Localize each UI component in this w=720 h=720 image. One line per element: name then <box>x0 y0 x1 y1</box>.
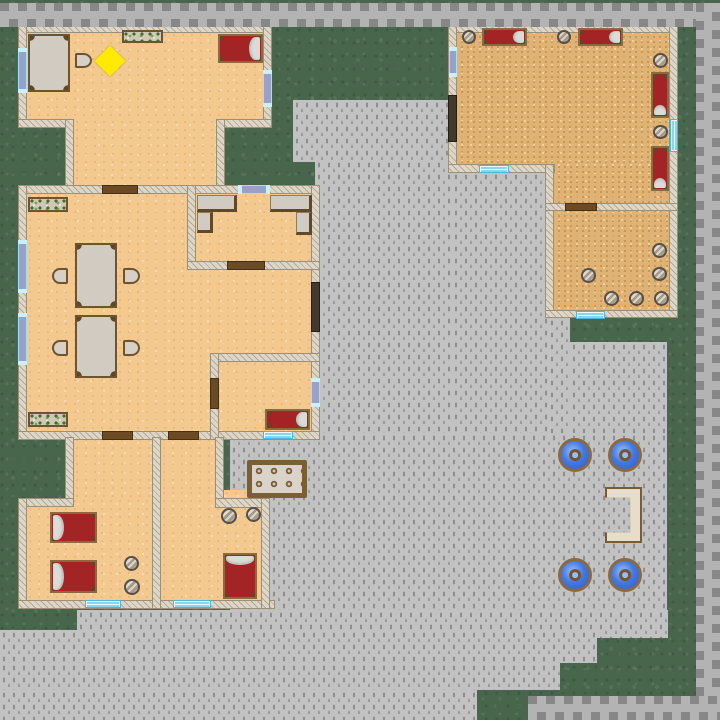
wall <box>18 498 27 609</box>
window <box>311 378 320 407</box>
window <box>479 165 509 173</box>
water-well[interactable] <box>608 438 642 472</box>
chair[interactable] <box>123 340 140 356</box>
wall <box>669 24 678 317</box>
bed[interactable] <box>578 28 623 46</box>
courtyard-paving <box>0 663 560 690</box>
door[interactable] <box>227 261 265 270</box>
courtyard-paving <box>452 172 548 440</box>
wall <box>18 185 320 194</box>
courtyard-paving <box>548 318 570 440</box>
wall <box>545 310 678 318</box>
courtyard-paving <box>315 160 452 440</box>
stool[interactable] <box>652 267 667 281</box>
stool[interactable] <box>557 30 571 44</box>
wall <box>152 437 161 609</box>
window <box>263 70 272 107</box>
door[interactable] <box>210 378 219 409</box>
wall <box>18 600 275 609</box>
wall <box>216 119 225 194</box>
wall <box>261 498 270 609</box>
table[interactable] <box>28 34 70 92</box>
door[interactable] <box>565 203 597 211</box>
plant-box[interactable] <box>28 412 68 427</box>
water-well[interactable] <box>558 438 592 472</box>
stool[interactable] <box>124 579 140 595</box>
wall <box>187 185 196 269</box>
stool[interactable] <box>654 291 669 306</box>
window <box>670 119 678 152</box>
game-table[interactable] <box>247 460 307 498</box>
castle-wall <box>528 696 720 720</box>
stool[interactable] <box>221 508 237 524</box>
stool[interactable] <box>246 507 261 522</box>
bed[interactable] <box>50 512 97 543</box>
kitchen-counter[interactable] <box>197 212 213 233</box>
window <box>18 240 27 293</box>
wall <box>65 437 74 505</box>
window <box>85 600 121 608</box>
stool[interactable] <box>124 556 139 571</box>
wall <box>545 164 554 317</box>
stool[interactable] <box>652 243 667 258</box>
room-floor <box>65 437 163 507</box>
room-floor <box>18 185 320 440</box>
window <box>173 600 211 608</box>
bed[interactable] <box>50 560 97 593</box>
plant-box[interactable] <box>122 30 163 43</box>
table[interactable] <box>75 243 117 308</box>
castle-wall <box>696 3 720 720</box>
door[interactable] <box>448 95 457 142</box>
bed[interactable] <box>651 146 669 191</box>
chair[interactable] <box>52 340 68 356</box>
kitchen-counter[interactable] <box>197 195 237 212</box>
door[interactable] <box>102 185 138 194</box>
stool[interactable] <box>653 125 668 139</box>
window <box>576 311 605 319</box>
courtyard-paving <box>570 342 667 440</box>
water-well[interactable] <box>608 558 642 592</box>
stool[interactable] <box>581 268 596 283</box>
stool[interactable] <box>629 291 644 306</box>
window <box>238 185 270 194</box>
bed[interactable] <box>265 409 310 430</box>
room-floor <box>65 119 225 194</box>
bed[interactable] <box>482 28 527 46</box>
stool[interactable] <box>462 30 476 44</box>
door[interactable] <box>311 282 320 332</box>
courtyard-paving <box>0 630 597 663</box>
kitchen-counter[interactable] <box>296 212 312 235</box>
courtyard-paving <box>293 100 452 162</box>
window <box>18 48 27 93</box>
table[interactable] <box>75 315 117 378</box>
window <box>18 313 27 365</box>
wall <box>215 437 224 502</box>
door[interactable] <box>168 431 199 440</box>
kitchen-counter[interactable] <box>270 195 312 212</box>
bed[interactable] <box>218 34 263 63</box>
bed[interactable] <box>223 553 257 599</box>
window <box>263 431 293 439</box>
plant-box[interactable] <box>28 197 68 212</box>
castle-wall <box>0 3 720 27</box>
wall <box>210 353 320 362</box>
chair[interactable] <box>75 53 92 68</box>
courtyard-paving <box>0 690 477 720</box>
door[interactable] <box>102 431 133 440</box>
water-well[interactable] <box>558 558 592 592</box>
chair[interactable] <box>52 268 68 284</box>
wall <box>65 119 74 194</box>
stool[interactable] <box>604 291 619 306</box>
bed[interactable] <box>651 72 669 118</box>
map <box>0 0 720 720</box>
room-floor <box>448 24 678 172</box>
stool[interactable] <box>653 53 668 68</box>
chair[interactable] <box>123 268 140 284</box>
window <box>449 47 457 77</box>
